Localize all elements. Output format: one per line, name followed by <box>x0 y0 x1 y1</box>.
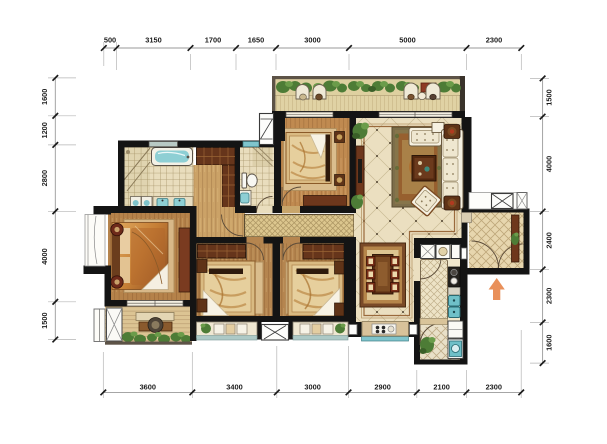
svg-text:3000: 3000 <box>304 383 320 392</box>
svg-text:2100: 2100 <box>433 383 449 392</box>
svg-text:4000: 4000 <box>40 248 49 264</box>
svg-text:3150: 3150 <box>145 36 161 45</box>
svg-text:3400: 3400 <box>226 383 242 392</box>
svg-text:3000: 3000 <box>304 36 320 45</box>
svg-text:2800: 2800 <box>40 170 49 186</box>
svg-text:1200: 1200 <box>40 122 49 138</box>
svg-text:2300: 2300 <box>486 383 502 392</box>
svg-text:2900: 2900 <box>374 383 390 392</box>
svg-text:4000: 4000 <box>545 156 554 172</box>
svg-text:1600: 1600 <box>40 89 49 105</box>
svg-text:2300: 2300 <box>486 36 502 45</box>
svg-text:1650: 1650 <box>248 36 264 45</box>
svg-text:2400: 2400 <box>545 232 554 248</box>
svg-text:1500: 1500 <box>40 312 49 328</box>
svg-text:5000: 5000 <box>399 36 415 45</box>
svg-text:2300: 2300 <box>545 288 554 304</box>
svg-text:1600: 1600 <box>545 334 554 350</box>
svg-text:1500: 1500 <box>545 89 554 105</box>
svg-text:1700: 1700 <box>205 36 221 45</box>
svg-text:3600: 3600 <box>140 383 156 392</box>
svg-text:500: 500 <box>104 36 116 45</box>
